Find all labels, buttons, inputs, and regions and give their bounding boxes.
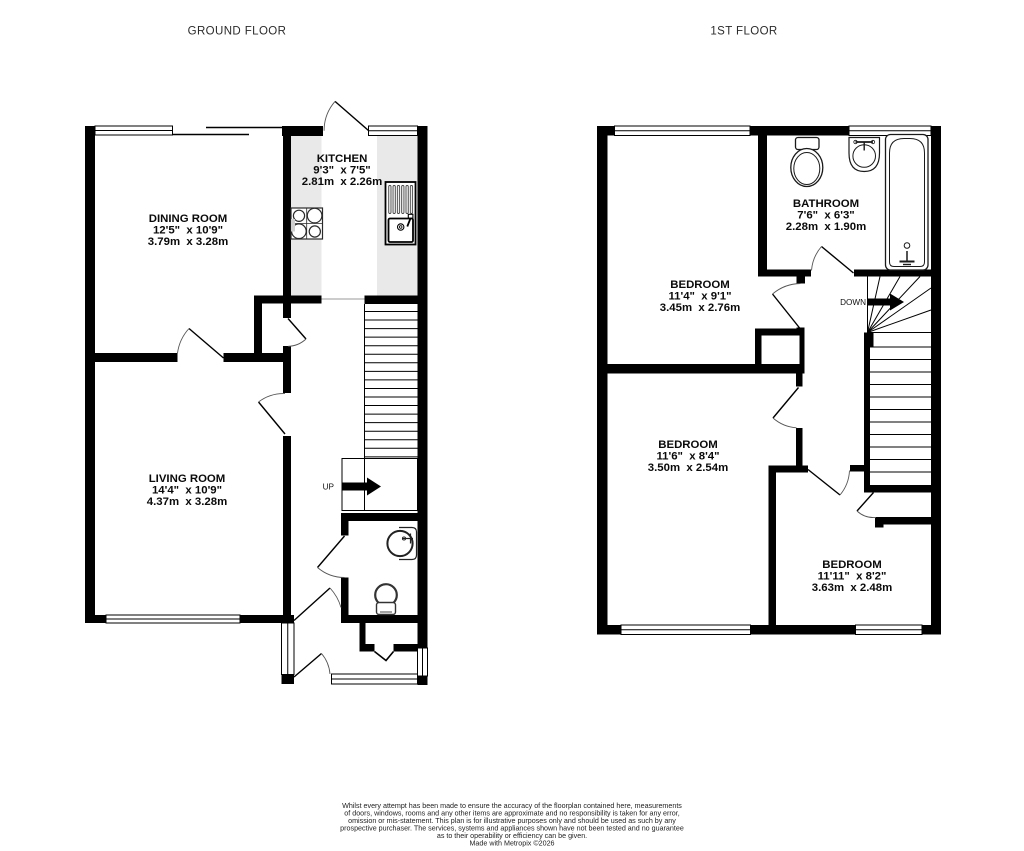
svg-text:11'4" x 9'1": 11'4" x 9'1": [668, 291, 731, 303]
svg-text:9'3" x 7'5": 9'3" x 7'5": [313, 165, 370, 177]
svg-text:3.50m x 2.54m: 3.50m x 2.54m: [648, 462, 728, 474]
svg-text:2.28m x 1.90m: 2.28m x 1.90m: [786, 221, 866, 233]
svg-text:BEDROOM: BEDROOM: [670, 279, 729, 291]
svg-text:BEDROOM: BEDROOM: [822, 559, 881, 571]
svg-text:UP: UP: [323, 483, 335, 492]
svg-text:4.37m x 3.28m: 4.37m x 3.28m: [147, 496, 227, 508]
svg-text:DINING ROOM: DINING ROOM: [149, 213, 227, 225]
svg-text:Made with Metropix ©2026: Made with Metropix ©2026: [469, 840, 554, 848]
svg-text:14'4" x 10'9": 14'4" x 10'9": [152, 485, 222, 497]
svg-text:12'5" x 10'9": 12'5" x 10'9": [153, 225, 223, 237]
svg-text:DOWN: DOWN: [840, 298, 866, 307]
svg-text:11'11" x 8'2": 11'11" x 8'2": [818, 571, 887, 583]
svg-text:3.79m x 3.28m: 3.79m x 3.28m: [148, 236, 228, 248]
svg-text:BEDROOM: BEDROOM: [658, 439, 717, 451]
svg-text:11'6" x 8'4": 11'6" x 8'4": [656, 451, 719, 463]
svg-text:3.63m x 2.48m: 3.63m x 2.48m: [812, 582, 892, 594]
svg-text:BATHROOM: BATHROOM: [793, 198, 859, 210]
svg-text:GROUND FLOOR: GROUND FLOOR: [188, 26, 287, 38]
svg-text:KITCHEN: KITCHEN: [317, 153, 368, 165]
svg-text:1ST FLOOR: 1ST FLOOR: [710, 26, 777, 38]
svg-text:7'6" x 6'3": 7'6" x 6'3": [797, 210, 854, 222]
svg-text:LIVING ROOM: LIVING ROOM: [149, 473, 226, 485]
svg-text:3.45m x 2.76m: 3.45m x 2.76m: [660, 302, 740, 314]
svg-text:2.81m x 2.26m: 2.81m x 2.26m: [302, 176, 382, 188]
